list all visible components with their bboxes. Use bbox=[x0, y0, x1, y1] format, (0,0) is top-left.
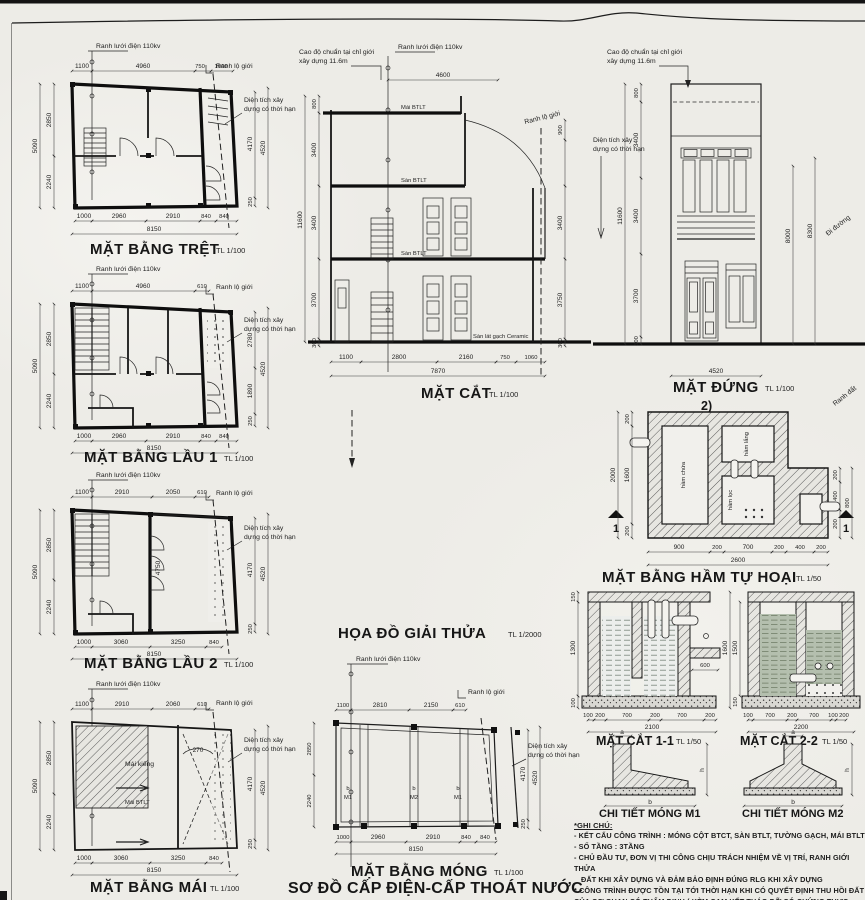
dim: 700 bbox=[677, 713, 687, 719]
dim: 3400 bbox=[311, 215, 318, 230]
dim: 5090 bbox=[32, 138, 39, 153]
doors bbox=[120, 98, 228, 200]
limited-area-hatch bbox=[208, 522, 230, 622]
electric-grid-line bbox=[386, 52, 435, 372]
dim-bottom: 1000 2960 2910 840 840 8150 bbox=[336, 834, 496, 854]
dim: 840 bbox=[461, 835, 471, 841]
limited-area-label: Diện tích xây dựng có thời hạn bbox=[228, 737, 296, 762]
dim: 2850 bbox=[46, 331, 53, 346]
drawing-elevation: Cao độ chuẩn tại chỉ giới xây dựng 11.6m… bbox=[593, 36, 865, 418]
dim-side: 600 bbox=[692, 663, 718, 670]
svg-text:Diện tích xây: Diện tích xây bbox=[244, 97, 284, 104]
dim: 4170 bbox=[247, 562, 254, 577]
svg-text:b: b bbox=[456, 786, 459, 792]
svg-text:dựng có thời hạn: dựng có thời hạn bbox=[244, 534, 296, 541]
svg-text:b: b bbox=[791, 799, 795, 806]
limited-area-label: Diện tích xây dựng có thời hạn bbox=[227, 317, 296, 342]
dim: 840 bbox=[219, 214, 229, 220]
dim: 700 bbox=[765, 713, 775, 719]
grid-line-label: Ranh lưới điện 110kv bbox=[96, 266, 161, 273]
drawing-section: Cao độ chuẩn tại chỉ giới xây dựng 11.6m… bbox=[293, 40, 598, 410]
note-line: - KẾT CẤU CÔNG TRÌNH : MÓNG CỘT BTCT, SÀ… bbox=[574, 831, 865, 842]
dim: 1100 bbox=[75, 701, 89, 708]
svg-text:h: h bbox=[844, 768, 851, 772]
svg-text:M1: M1 bbox=[454, 795, 462, 801]
dim: 1600 bbox=[624, 467, 631, 482]
dim: 840 bbox=[209, 640, 219, 646]
road-boundary-mark bbox=[458, 690, 466, 698]
roof-material-label: Mái BTLT bbox=[125, 800, 150, 806]
dim: 2240 bbox=[307, 795, 313, 808]
notes-block: *GHI CHÚ: - KẾT CẤU CÔNG TRÌNH : MÓNG CỘ… bbox=[574, 820, 865, 900]
datum-label: Cao độ chuẩn tại chỉ giới xây dựng 11.6m bbox=[299, 48, 381, 80]
dim: 1500 bbox=[732, 640, 739, 655]
room-label: hầm chứa bbox=[681, 461, 687, 488]
grid-line-label: Ranh lưới điện 110kv bbox=[96, 43, 161, 50]
dim: 1000 bbox=[77, 639, 92, 646]
dim: 1000 bbox=[337, 835, 350, 841]
drawing-septic-plan: hầm chứa hầm lắng hầm lọc 1 1 200 1600 2… bbox=[596, 400, 864, 584]
road-boundary-label: Ranh lộ giới bbox=[216, 490, 253, 497]
drawing-title: CHI TIẾT MÓNG M2 bbox=[742, 807, 843, 820]
dim: 3700 bbox=[311, 292, 318, 307]
dim: 150 bbox=[733, 697, 739, 707]
foundation-lines bbox=[333, 720, 520, 830]
dim: 2240 bbox=[46, 814, 53, 829]
svg-text:270: 270 bbox=[193, 747, 204, 754]
dim: 840 bbox=[209, 856, 219, 862]
dim-right: 900 3400 3750 300 bbox=[557, 120, 565, 348]
dim-total: 8150 bbox=[147, 226, 162, 233]
dim: 1100 bbox=[339, 354, 353, 361]
dim: 700 bbox=[809, 713, 819, 719]
dim: 700 bbox=[743, 544, 754, 551]
drawing-footing-m1: a b h CHI TIẾT MÓNG M1 bbox=[583, 726, 725, 818]
dim: 150 bbox=[571, 592, 577, 602]
roof-label: Mái BTLT bbox=[401, 105, 426, 111]
dim: 4520 bbox=[260, 780, 267, 795]
svg-text:M1: M1 bbox=[344, 795, 352, 801]
dim: 200 bbox=[595, 713, 605, 719]
datum-label: Cao độ chuẩn tại chỉ giới xây dựng 11.6m bbox=[607, 48, 691, 88]
dim: 2910 bbox=[115, 701, 130, 708]
svg-text:b: b bbox=[412, 786, 415, 792]
svg-text:a: a bbox=[620, 729, 624, 736]
road-boundary-label: Ranh lộ giới bbox=[468, 689, 505, 696]
dim: 250 bbox=[248, 624, 254, 634]
dim: 2240 bbox=[46, 393, 53, 408]
blueprint-sheet: Ranh lưới điện 110kv Ranh lộ giới 1100 4… bbox=[0, 0, 865, 900]
svg-text:Diện tích xây: Diện tích xây bbox=[528, 743, 568, 750]
dim: 4520 bbox=[532, 770, 539, 785]
section-doors bbox=[335, 198, 471, 342]
dim: 2850 bbox=[46, 537, 53, 552]
svg-text:b: b bbox=[346, 786, 349, 792]
electric-grid-line bbox=[88, 51, 128, 200]
dim: 8300 bbox=[807, 223, 814, 238]
room-label: hầm lọc bbox=[728, 490, 734, 510]
dim: 4960 bbox=[136, 283, 151, 290]
dim: 1600 bbox=[722, 640, 729, 655]
svg-text:dựng có thời hạn: dựng có thời hạn bbox=[244, 326, 296, 333]
dim: 3400 bbox=[633, 132, 640, 147]
dim: 2960 bbox=[112, 433, 127, 440]
drawing-scale: TL 1/100 bbox=[224, 454, 253, 463]
dim: 2960 bbox=[112, 213, 127, 220]
dim: 1890 bbox=[247, 383, 254, 398]
section-mark-right: 1 bbox=[838, 510, 854, 535]
drawing-plan-lau1: Ranh lưới điện 110kv Ranh lộ giới 1100 4… bbox=[28, 262, 323, 464]
dim: 2240 bbox=[46, 174, 53, 189]
dim: 840 bbox=[201, 214, 211, 220]
dim-bottom: 1000 2960 2910 840 840 8150 bbox=[72, 213, 237, 234]
dim-left: 200 1600 200 2000 bbox=[610, 412, 632, 538]
dim-mid-wall: 4750 bbox=[155, 560, 162, 575]
dim-bottom: 1100 2800 2160 750 1060 7870 bbox=[331, 354, 545, 376]
dim: 2160 bbox=[459, 354, 474, 361]
svg-text:h: h bbox=[699, 768, 706, 772]
note-line: ĐẤT KHI XÂY DỰNG VÀ ĐẢM BẢO ĐỊNH ĐÚNG RL… bbox=[574, 875, 865, 886]
notes-heading: *GHI CHÚ: bbox=[574, 820, 865, 831]
limited-area-label: Diện tích xây dựng có thời hạn bbox=[227, 525, 296, 550]
dim: 800 bbox=[634, 88, 640, 98]
street-label: Đi đường bbox=[825, 214, 852, 237]
stairs bbox=[75, 514, 109, 576]
dim-top: 1100 2810 2150 610 bbox=[336, 702, 466, 710]
drawing-plan-mai: Ranh lưới điện 110kv Ranh lộ giới 270 Má… bbox=[28, 676, 323, 898]
building-profile bbox=[308, 96, 591, 342]
dim: 800 bbox=[845, 498, 851, 508]
dim: 2150 bbox=[424, 702, 439, 709]
dim-left: 5090 2850 2240 bbox=[32, 722, 54, 850]
dim: 3400 bbox=[557, 215, 564, 230]
dim: 2800 bbox=[392, 354, 407, 361]
dim: 4520 bbox=[709, 368, 724, 375]
dim: 2060 bbox=[166, 701, 181, 708]
dim-top: 4600 bbox=[388, 72, 498, 80]
dim: 4170 bbox=[247, 776, 254, 791]
dim: 400 bbox=[795, 545, 805, 551]
dim: 750 bbox=[500, 355, 510, 361]
dim: 100 bbox=[828, 713, 838, 719]
drawing-plan-lau2: Ranh lưới điện 110kv Ranh lộ giới 1100 2… bbox=[28, 468, 323, 670]
skylight-label: Mái kiếng bbox=[125, 759, 154, 768]
drawing-title-sodo: SƠ ĐỒ CẤP ĐIỆN-CẤP THOÁT NƯỚC bbox=[288, 880, 618, 898]
drawing-title: MẶT BẰNG LẦU 2 bbox=[84, 654, 218, 672]
dim: 4170 bbox=[247, 136, 254, 151]
dim-h: h bbox=[844, 744, 852, 795]
dim: 5090 bbox=[32, 358, 39, 373]
slab-label: Sàn BTLT bbox=[401, 178, 427, 184]
dim: 400 bbox=[833, 491, 839, 501]
road-boundary-label: Ranh lộ giới bbox=[216, 700, 253, 707]
dim: 200 bbox=[833, 470, 839, 480]
svg-text:a: a bbox=[791, 729, 795, 736]
dim-left: 11600 800 3400 3400 3700 300 bbox=[297, 96, 319, 348]
svg-text:xây dựng 11.6m: xây dựng 11.6m bbox=[607, 58, 656, 65]
drawing-title: HỌA ĐỒ GIẢI THỬA bbox=[338, 624, 486, 642]
svg-text:Diện tích xây: Diện tích xây bbox=[244, 525, 284, 532]
svg-text:b: b bbox=[648, 799, 652, 806]
dim: 2910 bbox=[115, 489, 130, 496]
dim: 610 bbox=[197, 284, 207, 290]
dim-b: b bbox=[744, 799, 842, 806]
drawing-scale: TL 1/100 bbox=[494, 868, 523, 877]
dim: 900 bbox=[558, 125, 564, 135]
dim: 300 bbox=[634, 336, 640, 346]
slab-label: Sàn BTLT bbox=[401, 251, 427, 257]
limited-area-label: Diện tích xây dựng có thời hạn bbox=[512, 743, 580, 766]
dim: 750 bbox=[195, 64, 205, 70]
note-line: - CHỦ ĐẦU TƯ, ĐƠN VỊ THI CÔNG CHỊU TRÁCH… bbox=[574, 853, 865, 875]
dim: 11600 bbox=[617, 207, 624, 225]
svg-text:600: 600 bbox=[700, 663, 710, 669]
drawing-title: MẶT BẰNG TRỆT bbox=[90, 240, 219, 258]
dim: 4960 bbox=[136, 63, 151, 70]
dim-left: 5090 2850 2240 bbox=[32, 510, 54, 634]
road-boundary-mark bbox=[206, 492, 214, 500]
dim: 1060 bbox=[215, 64, 228, 70]
drawing-footing-m2: a b h CHI TIẾT MÓNG M2 bbox=[724, 726, 865, 818]
dim: 250 bbox=[248, 197, 254, 207]
dim: 4170 bbox=[520, 766, 527, 781]
dim: 2910 bbox=[166, 433, 181, 440]
dim-left: 2850 2240 bbox=[307, 723, 314, 827]
section-mark-left: 1 bbox=[608, 510, 624, 535]
dim-top: 1100 2910 2050 610 bbox=[72, 489, 209, 497]
dim: 1100 bbox=[337, 703, 349, 709]
dim: 2050 bbox=[166, 489, 181, 496]
drawing-title: MẶT BẰNG LẦU 1 bbox=[84, 448, 218, 466]
footing-tags: b M1 b M2 b M1 bbox=[344, 786, 462, 801]
dim-top: 1100 4960 750 1060 bbox=[72, 63, 233, 71]
walls bbox=[70, 82, 237, 209]
drawing-scale: TL 1/100 bbox=[489, 390, 518, 399]
limited-area-label: Diện tích xây dựng có thời hạn bbox=[225, 97, 296, 124]
dim: 200 bbox=[839, 713, 849, 719]
dim: 3400 bbox=[311, 142, 318, 157]
road-boundary-label: Ranh lộ giới bbox=[216, 284, 253, 291]
dim: 250 bbox=[248, 416, 254, 426]
dim-right: 4170 4520 250 bbox=[247, 514, 268, 634]
dim: 2780 bbox=[247, 332, 254, 347]
floor-finish-label: Sàn lát gạch Ceramic bbox=[473, 334, 529, 340]
dim: 840 bbox=[219, 434, 229, 440]
dim: 100 bbox=[743, 713, 753, 719]
drawing-title-giaithua: HỌA ĐỒ GIẢI THỬA TL 1/2000 bbox=[330, 620, 580, 646]
dim: 2000 bbox=[610, 467, 617, 482]
dim: 610 bbox=[455, 703, 465, 709]
dim: 250 bbox=[248, 839, 254, 849]
dim: 2850 bbox=[46, 112, 53, 127]
dim: 800 bbox=[312, 99, 318, 109]
note-line: - SỐ TẦNG : 3TẦNG bbox=[574, 842, 865, 853]
dim-a: a bbox=[784, 729, 802, 736]
drawing-scale: TL 1/100 bbox=[210, 884, 239, 893]
dim: 2910 bbox=[166, 213, 181, 220]
dim: 200 bbox=[787, 713, 797, 719]
dim: 300 bbox=[312, 338, 318, 348]
dashed-marker bbox=[342, 408, 362, 478]
dim: 1100 bbox=[75, 489, 89, 496]
footing-shape bbox=[744, 744, 842, 795]
dim-bottom: 1000 3060 3250 840 8150 bbox=[72, 855, 237, 875]
drawing-plan-tret: Ranh lưới điện 110kv Ranh lộ giới 1100 4… bbox=[28, 38, 323, 260]
drawing-title: SƠ ĐỒ CẤP ĐIỆN-CẤP THOÁT NƯỚC bbox=[288, 880, 583, 897]
dim: 1000 bbox=[77, 433, 92, 440]
dim-b: b bbox=[605, 799, 695, 806]
drawing-title: MẶT ĐỨNG bbox=[673, 378, 759, 396]
dim: 200 bbox=[833, 519, 839, 529]
dim: 2240 bbox=[46, 599, 53, 614]
dim: 1000 bbox=[77, 855, 92, 862]
road-boundary-mark bbox=[206, 65, 214, 73]
dim: 1100 bbox=[75, 63, 89, 70]
dim: 840 bbox=[480, 835, 490, 841]
tank-structure bbox=[742, 592, 860, 708]
svg-text:Diện tích xây: Diện tích xây bbox=[244, 317, 284, 324]
dim: 250 bbox=[521, 819, 527, 829]
drawing-title: MẶT CẮT bbox=[421, 384, 491, 402]
dim: 2910 bbox=[426, 834, 441, 841]
svg-text:Cao độ chuẩn tại chỉ giới: Cao độ chuẩn tại chỉ giới bbox=[299, 48, 375, 56]
dim-top: 1100 4960 610 bbox=[72, 283, 209, 291]
drawing-scale: TL 1/100 bbox=[224, 660, 253, 669]
dim-right: 8000 8300 bbox=[785, 158, 815, 344]
dim: 2850 bbox=[46, 750, 53, 765]
dim: 900 bbox=[674, 544, 685, 551]
dim: 4520 bbox=[260, 566, 267, 581]
dim-right: 4170 4520 250 bbox=[247, 726, 268, 850]
svg-text:dựng có thời hạn: dựng có thời hạn bbox=[244, 106, 296, 113]
drawing-scale: TL 1/100 bbox=[765, 384, 794, 393]
roof-angle: 270 bbox=[183, 747, 213, 754]
drawing-title: MẶT BẰNG MÓNG bbox=[351, 862, 488, 880]
grid-line-label: Ranh lưới điện 110kv bbox=[398, 44, 463, 51]
dim: 840 bbox=[201, 434, 211, 440]
svg-text:Diện tích xây: Diện tích xây bbox=[244, 737, 284, 744]
dim: 3750 bbox=[557, 292, 564, 307]
drawing-septic-cut22: 1600 1500 150 100 700 200 700 100 200 22… bbox=[726, 578, 865, 746]
svg-text:Cao độ chuẩn tại chỉ giới: Cao độ chuẩn tại chỉ giới bbox=[607, 48, 683, 56]
dim: 11600 bbox=[297, 211, 304, 229]
dim: 610 bbox=[197, 490, 207, 496]
limited-area-hatch bbox=[207, 314, 229, 368]
room-label: hầm lắng bbox=[743, 432, 750, 456]
dim-bottom: 4520 bbox=[671, 368, 761, 376]
svg-text:M2: M2 bbox=[410, 795, 418, 801]
svg-text:Diện tích xây: Diện tích xây bbox=[593, 137, 633, 144]
drawing-title: MẶT BẰNG MÁI bbox=[90, 878, 207, 896]
dim-bottom: 900 200 700 200 400 200 2600 bbox=[648, 544, 828, 565]
dim: 610 bbox=[197, 702, 207, 708]
drawing-foundation-plan: Ranh lưới điện 110kv Ranh lộ giới b M1 b… bbox=[296, 652, 586, 882]
drawing-title: CHI TIẾT MÓNG M1 bbox=[599, 807, 700, 820]
dim-total: 2600 bbox=[731, 557, 746, 564]
dim-h: h bbox=[699, 744, 707, 795]
dim: 5090 bbox=[32, 778, 39, 793]
dim: 4600 bbox=[436, 72, 451, 79]
dim-total: 8150 bbox=[409, 846, 424, 853]
stairs bbox=[75, 308, 109, 370]
svg-text:xây dựng 11.6m: xây dựng 11.6m bbox=[299, 58, 348, 65]
dim: 200 bbox=[625, 414, 631, 424]
stairs bbox=[84, 128, 106, 166]
road-boundary-label: Ranh lộ giới bbox=[524, 110, 562, 126]
dim: 3700 bbox=[633, 288, 640, 303]
dim: 300 bbox=[558, 338, 564, 348]
dim: 4520 bbox=[260, 361, 267, 376]
dim: 3250 bbox=[171, 855, 186, 862]
grid-line-label: Ranh lưới điện 110kv bbox=[96, 472, 161, 479]
drawing-scale: TL 1/100 bbox=[216, 246, 245, 255]
section-stairs bbox=[371, 218, 393, 342]
dim: 4520 bbox=[260, 140, 267, 155]
dim: 700 bbox=[622, 713, 632, 719]
dim: 1100 bbox=[75, 283, 89, 290]
dim: 3060 bbox=[114, 639, 129, 646]
dim-left: 5090 2850 2240 bbox=[32, 84, 54, 208]
grid-line-label: Ranh lưới điện 110kv bbox=[356, 656, 421, 663]
dim: 8000 bbox=[785, 228, 792, 243]
dim-total: 7870 bbox=[431, 368, 446, 375]
dim: 200 bbox=[712, 545, 722, 551]
road-boundary-mark bbox=[206, 286, 214, 294]
dim-total: 8150 bbox=[147, 867, 162, 874]
dim: 3250 bbox=[171, 639, 186, 646]
drawing-scale: TL 1/2000 bbox=[508, 630, 542, 639]
dim: 2960 bbox=[371, 834, 386, 841]
dim: 2810 bbox=[373, 702, 388, 709]
dim-left: 5090 2850 2240 bbox=[32, 304, 54, 428]
note-line: * CÔNG TRÌNH ĐƯỢC TỒN TẠI TỚI THỜI HẠN K… bbox=[574, 886, 865, 897]
dim: 1000 bbox=[77, 213, 92, 220]
dim: 200 bbox=[705, 713, 715, 719]
dim: 5090 bbox=[32, 564, 39, 579]
dim: 2850 bbox=[307, 743, 313, 756]
svg-text:1: 1 bbox=[843, 523, 849, 535]
dim-left: 11600 800 3400 3400 3700 300 bbox=[617, 84, 641, 346]
dim: 200 bbox=[816, 545, 826, 551]
dim: 200 bbox=[650, 713, 660, 719]
dim: 200 bbox=[625, 526, 631, 536]
dim: 1060 bbox=[525, 355, 538, 361]
drawing-septic-cut11: 600 150 1300 100 100 200 700 200 700 200… bbox=[570, 578, 728, 746]
footing-shape bbox=[605, 744, 695, 795]
dim: 3400 bbox=[633, 208, 640, 223]
dim: 3060 bbox=[114, 855, 129, 862]
dim-a: a bbox=[613, 729, 631, 736]
svg-text:dựng có thời hạn: dựng có thời hạn bbox=[244, 746, 296, 753]
svg-text:dựng có thời hạn: dựng có thời hạn bbox=[528, 752, 580, 759]
grid-line-label: Ranh lưới điện 110kv bbox=[96, 681, 161, 688]
dim: 200 bbox=[774, 545, 784, 551]
